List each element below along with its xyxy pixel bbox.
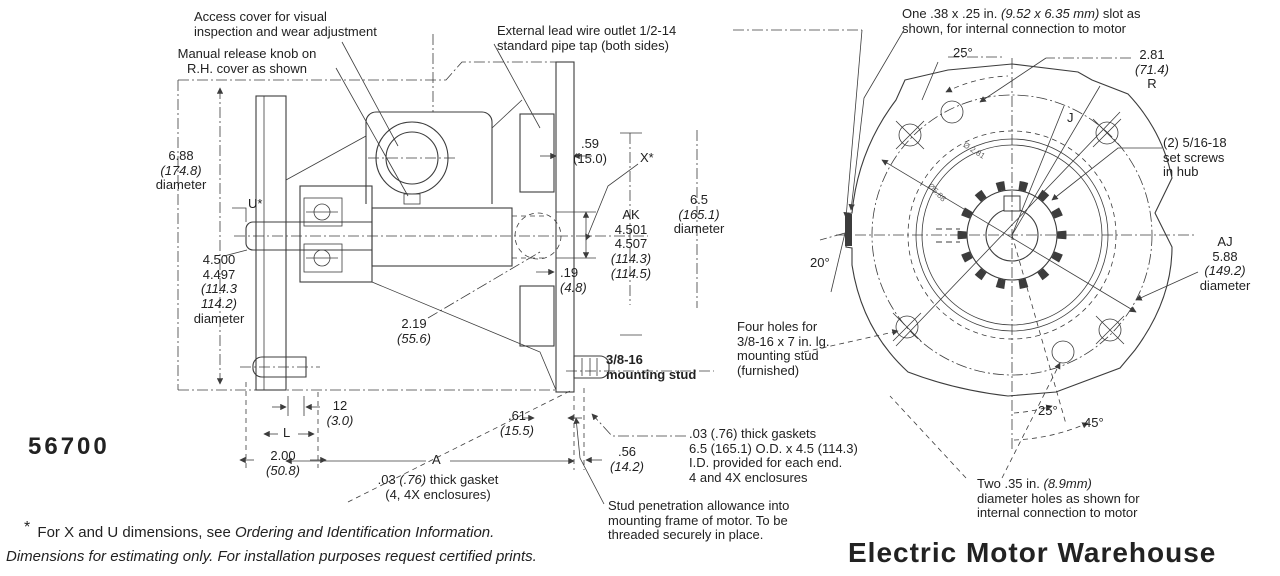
dim-0-61: .61(15.5) bbox=[492, 409, 542, 438]
dim-x-ref: X* bbox=[640, 151, 654, 166]
callout-set-screws: (2) 5/16-18 set screws in hub bbox=[1163, 136, 1227, 180]
dim-0-56: .56(14.2) bbox=[602, 445, 652, 474]
callout-manual-release: Manual release knob on R.H. cover as sho… bbox=[158, 47, 336, 76]
dim-0-59: .59(15.0) bbox=[563, 137, 617, 166]
dim-u-ref: U* bbox=[248, 197, 262, 212]
dim-angle-45: 45° bbox=[1084, 416, 1104, 431]
dim-2-81-r: 2.81(71.4)R bbox=[1126, 48, 1178, 92]
footnote-estimating: Dimensions for estimating only. For inst… bbox=[6, 549, 537, 566]
mounting-holes bbox=[893, 119, 1124, 344]
front-view bbox=[804, 30, 1198, 478]
dim-j-ref: J bbox=[1067, 111, 1074, 126]
dim-2-00: 2.00(50.8) bbox=[258, 449, 308, 478]
dim-2-19: 2.19(55.6) bbox=[388, 317, 440, 346]
dim-angle-25-top: 25° bbox=[953, 46, 973, 61]
callout-four-holes: Four holes for 3/8-16 x 7 in. lg. mounti… bbox=[737, 320, 830, 379]
dim-angle-20: 20° bbox=[810, 256, 830, 271]
callout-mounting-stud: 3/8-16 mounting stud bbox=[606, 353, 696, 382]
brake-dimension-drawing: Access cover for visual inspection and w… bbox=[0, 0, 1280, 576]
dim-6-88-diameter: 6.88(174.8)diameter bbox=[146, 149, 216, 193]
dim-0-12: 12(3.0) bbox=[320, 399, 360, 428]
brand-name: Electric Motor Warehouse bbox=[848, 537, 1216, 569]
callout-two-holes: Two .35 in. (8.9mm)diameter holes as sho… bbox=[977, 477, 1140, 521]
dim-aj-diameter: AJ5.88(149.2)diameter bbox=[1192, 235, 1258, 294]
dim-0-19: .19(4.8) bbox=[560, 266, 587, 295]
callout-slot: One .38 x .25 in. (9.52 x 6.35 mm) slot … bbox=[902, 7, 1140, 36]
dim-4-500-diameter: 4.5004.497(114.3114.2)diameter bbox=[188, 253, 250, 326]
dim-l-ref: L bbox=[283, 426, 290, 441]
dim-a-ref: A bbox=[432, 453, 441, 468]
part-number: 56700 bbox=[28, 433, 110, 460]
footnote-x-u: * For X and U dimensions, see Ordering a… bbox=[24, 519, 494, 542]
dim-angle-25-bottom: 25° bbox=[1038, 404, 1058, 419]
callout-lead-wire: External lead wire outlet 1/2-14 standar… bbox=[497, 24, 676, 53]
callout-gaskets-pair: .03 (.76) thick gaskets 6.5 (165.1) O.D.… bbox=[689, 427, 858, 486]
callout-gasket-single: .03 (.76) thick gasket(4, 4X enclosures) bbox=[358, 473, 518, 502]
dim-ak: AK4.5014.507(114.3)(114.5) bbox=[602, 208, 660, 281]
dim-6-5-diameter: 6.5(165.1)diameter bbox=[666, 193, 732, 237]
callout-access-cover: Access cover for visual inspection and w… bbox=[194, 10, 377, 39]
callout-stud-penetration: Stud penetration allowance into mounting… bbox=[608, 499, 789, 543]
